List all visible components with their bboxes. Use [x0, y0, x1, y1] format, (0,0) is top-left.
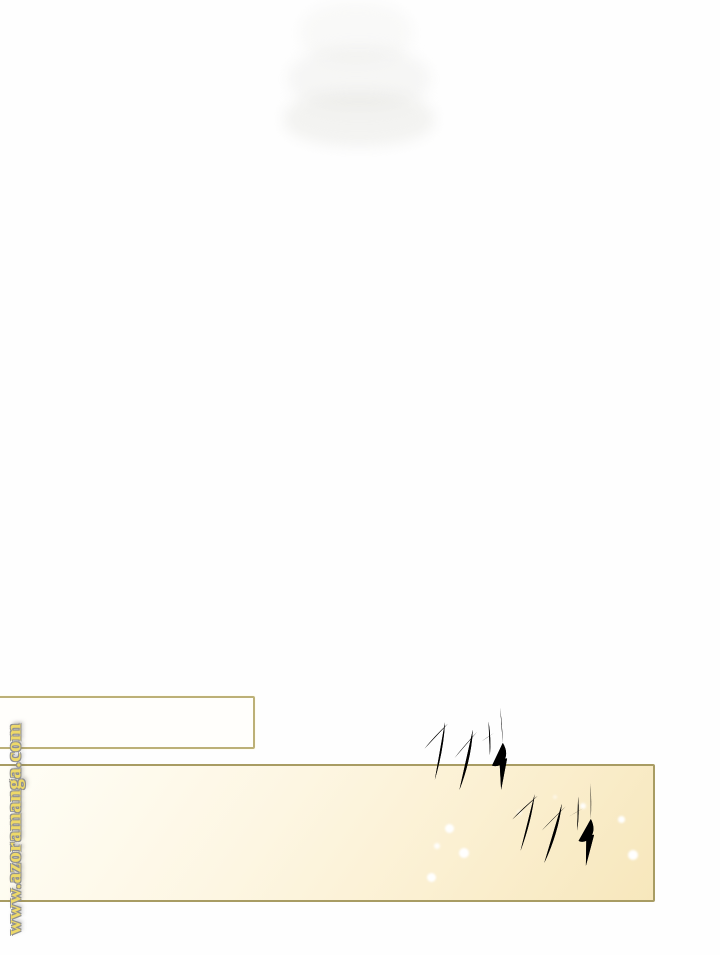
- sfx-text-2: 짹: [0, 0, 1, 1]
- site-watermark: www.azoramanga.com: [2, 723, 27, 935]
- manga-page: 짹 짹 www.azoramanga.com: [0, 0, 720, 955]
- main-panel: [0, 764, 655, 902]
- caption-box: [0, 696, 255, 749]
- faint-artwork-shape: [300, 2, 412, 64]
- faint-artwork-shape: [288, 48, 430, 110]
- sfx-text-1: 짹: [0, 0, 1, 1]
- faint-artwork-shape: [284, 92, 434, 146]
